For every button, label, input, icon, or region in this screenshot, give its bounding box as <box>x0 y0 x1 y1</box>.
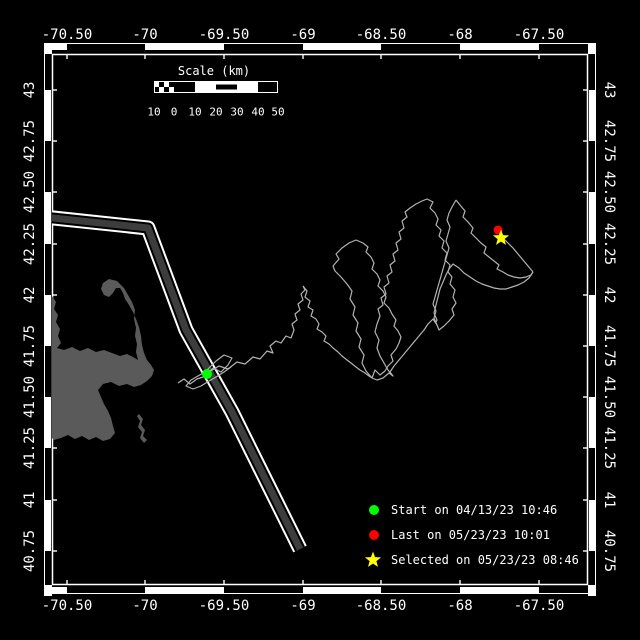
legend-label: Selected on 05/23/23 08:46 <box>391 553 579 567</box>
scalebar-number: 30 <box>230 106 243 119</box>
frame-corner <box>44 585 52 596</box>
lat-tick-label: 41 <box>22 492 38 509</box>
scalebar-number: 40 <box>251 106 264 119</box>
lat-tick-label: 41.25 <box>601 427 617 469</box>
lat-tick-label: 40.75 <box>22 530 38 572</box>
lon-tick-label: -67.50 <box>514 27 565 43</box>
glider-track[interactable] <box>456 200 533 278</box>
lon-tick-label: -70.50 <box>42 598 93 614</box>
lat-tick-label: 40.75 <box>601 530 617 572</box>
frame-corner <box>588 43 596 54</box>
lat-tick-label: 42.50 <box>22 171 38 213</box>
legend-marker-star <box>365 552 381 567</box>
lat-tick-label: 41.75 <box>22 325 38 367</box>
lat-tick-label: 42 <box>22 287 38 304</box>
lon-tick-label: -68.50 <box>356 598 407 614</box>
lon-tick-label: -70.50 <box>42 27 93 43</box>
lat-tick-label: 42.50 <box>601 171 617 213</box>
lon-tick-label: -69.50 <box>199 27 250 43</box>
scalebar-title: Scale (km) <box>178 64 250 78</box>
frame-corner <box>44 43 52 54</box>
lat-tick-label: 41 <box>601 492 617 509</box>
scalebar-number: 10 <box>188 106 201 119</box>
frame-segment <box>589 500 595 551</box>
frame-segment <box>45 295 51 346</box>
frame-segment <box>145 587 224 593</box>
scalebar-number: 20 <box>209 106 222 119</box>
glider-track[interactable] <box>433 200 456 325</box>
legend-label: Last on 05/23/23 10:01 <box>391 528 550 542</box>
frame-segment <box>45 397 51 448</box>
lat-tick-label: 43 <box>22 82 38 99</box>
frame-segment <box>589 397 595 448</box>
glider-track[interactable] <box>501 236 533 272</box>
frame-segment <box>460 44 539 50</box>
lat-tick-label: 41.50 <box>22 376 38 418</box>
landmass-cape-cod <box>137 414 147 443</box>
lon-tick-label: -69 <box>290 27 315 43</box>
frame-segment <box>303 587 381 593</box>
frame-segment <box>460 587 539 593</box>
legend-label: Start on 04/13/23 10:46 <box>391 503 557 517</box>
map-plot[interactable] <box>0 0 640 640</box>
lon-tick-label: -68.50 <box>356 27 407 43</box>
lat-tick-label: 42.25 <box>22 223 38 265</box>
frame-segment <box>589 90 595 141</box>
lon-tick-label: -70 <box>132 598 157 614</box>
lat-tick-label: 42.75 <box>22 120 38 162</box>
frame-segment <box>303 44 381 50</box>
lat-tick-label: 41.75 <box>601 325 617 367</box>
frame-segment <box>45 90 51 141</box>
lon-tick-label: -67.50 <box>514 598 565 614</box>
scalebar-number: 50 <box>271 106 284 119</box>
legend-marker-circle <box>369 505 379 515</box>
lat-tick-label: 41.50 <box>601 376 617 418</box>
glider-track[interactable] <box>209 286 305 372</box>
frame-segment <box>145 44 224 50</box>
glider-track[interactable] <box>303 286 372 378</box>
lon-tick-label: -68 <box>447 598 472 614</box>
frame-segment <box>589 192 595 244</box>
glider-track-map-window: -70.50-70-69.50-69-68.50-68-67.50 -70.50… <box>0 0 640 640</box>
frame-segment <box>589 295 595 346</box>
lon-tick-label: -70 <box>132 27 157 43</box>
lat-tick-label: 43 <box>601 82 617 99</box>
lat-tick-label: 42.75 <box>601 120 617 162</box>
scalebar-number: 0 <box>171 106 178 119</box>
frame-segment <box>45 500 51 551</box>
legend-marker-circle <box>369 530 379 540</box>
lon-tick-label: -69.50 <box>199 598 250 614</box>
lat-tick-label: 42.25 <box>601 223 617 265</box>
start-marker[interactable] <box>202 369 212 379</box>
scalebar-number: 10 <box>147 106 160 119</box>
lon-tick-label: -69 <box>290 598 315 614</box>
frame-corner <box>588 585 596 596</box>
lat-tick-label: 42 <box>601 287 617 304</box>
glider-track[interactable] <box>372 199 456 380</box>
lat-tick-label: 41.25 <box>22 427 38 469</box>
lon-tick-label: -68 <box>447 27 472 43</box>
frame-segment <box>45 192 51 244</box>
